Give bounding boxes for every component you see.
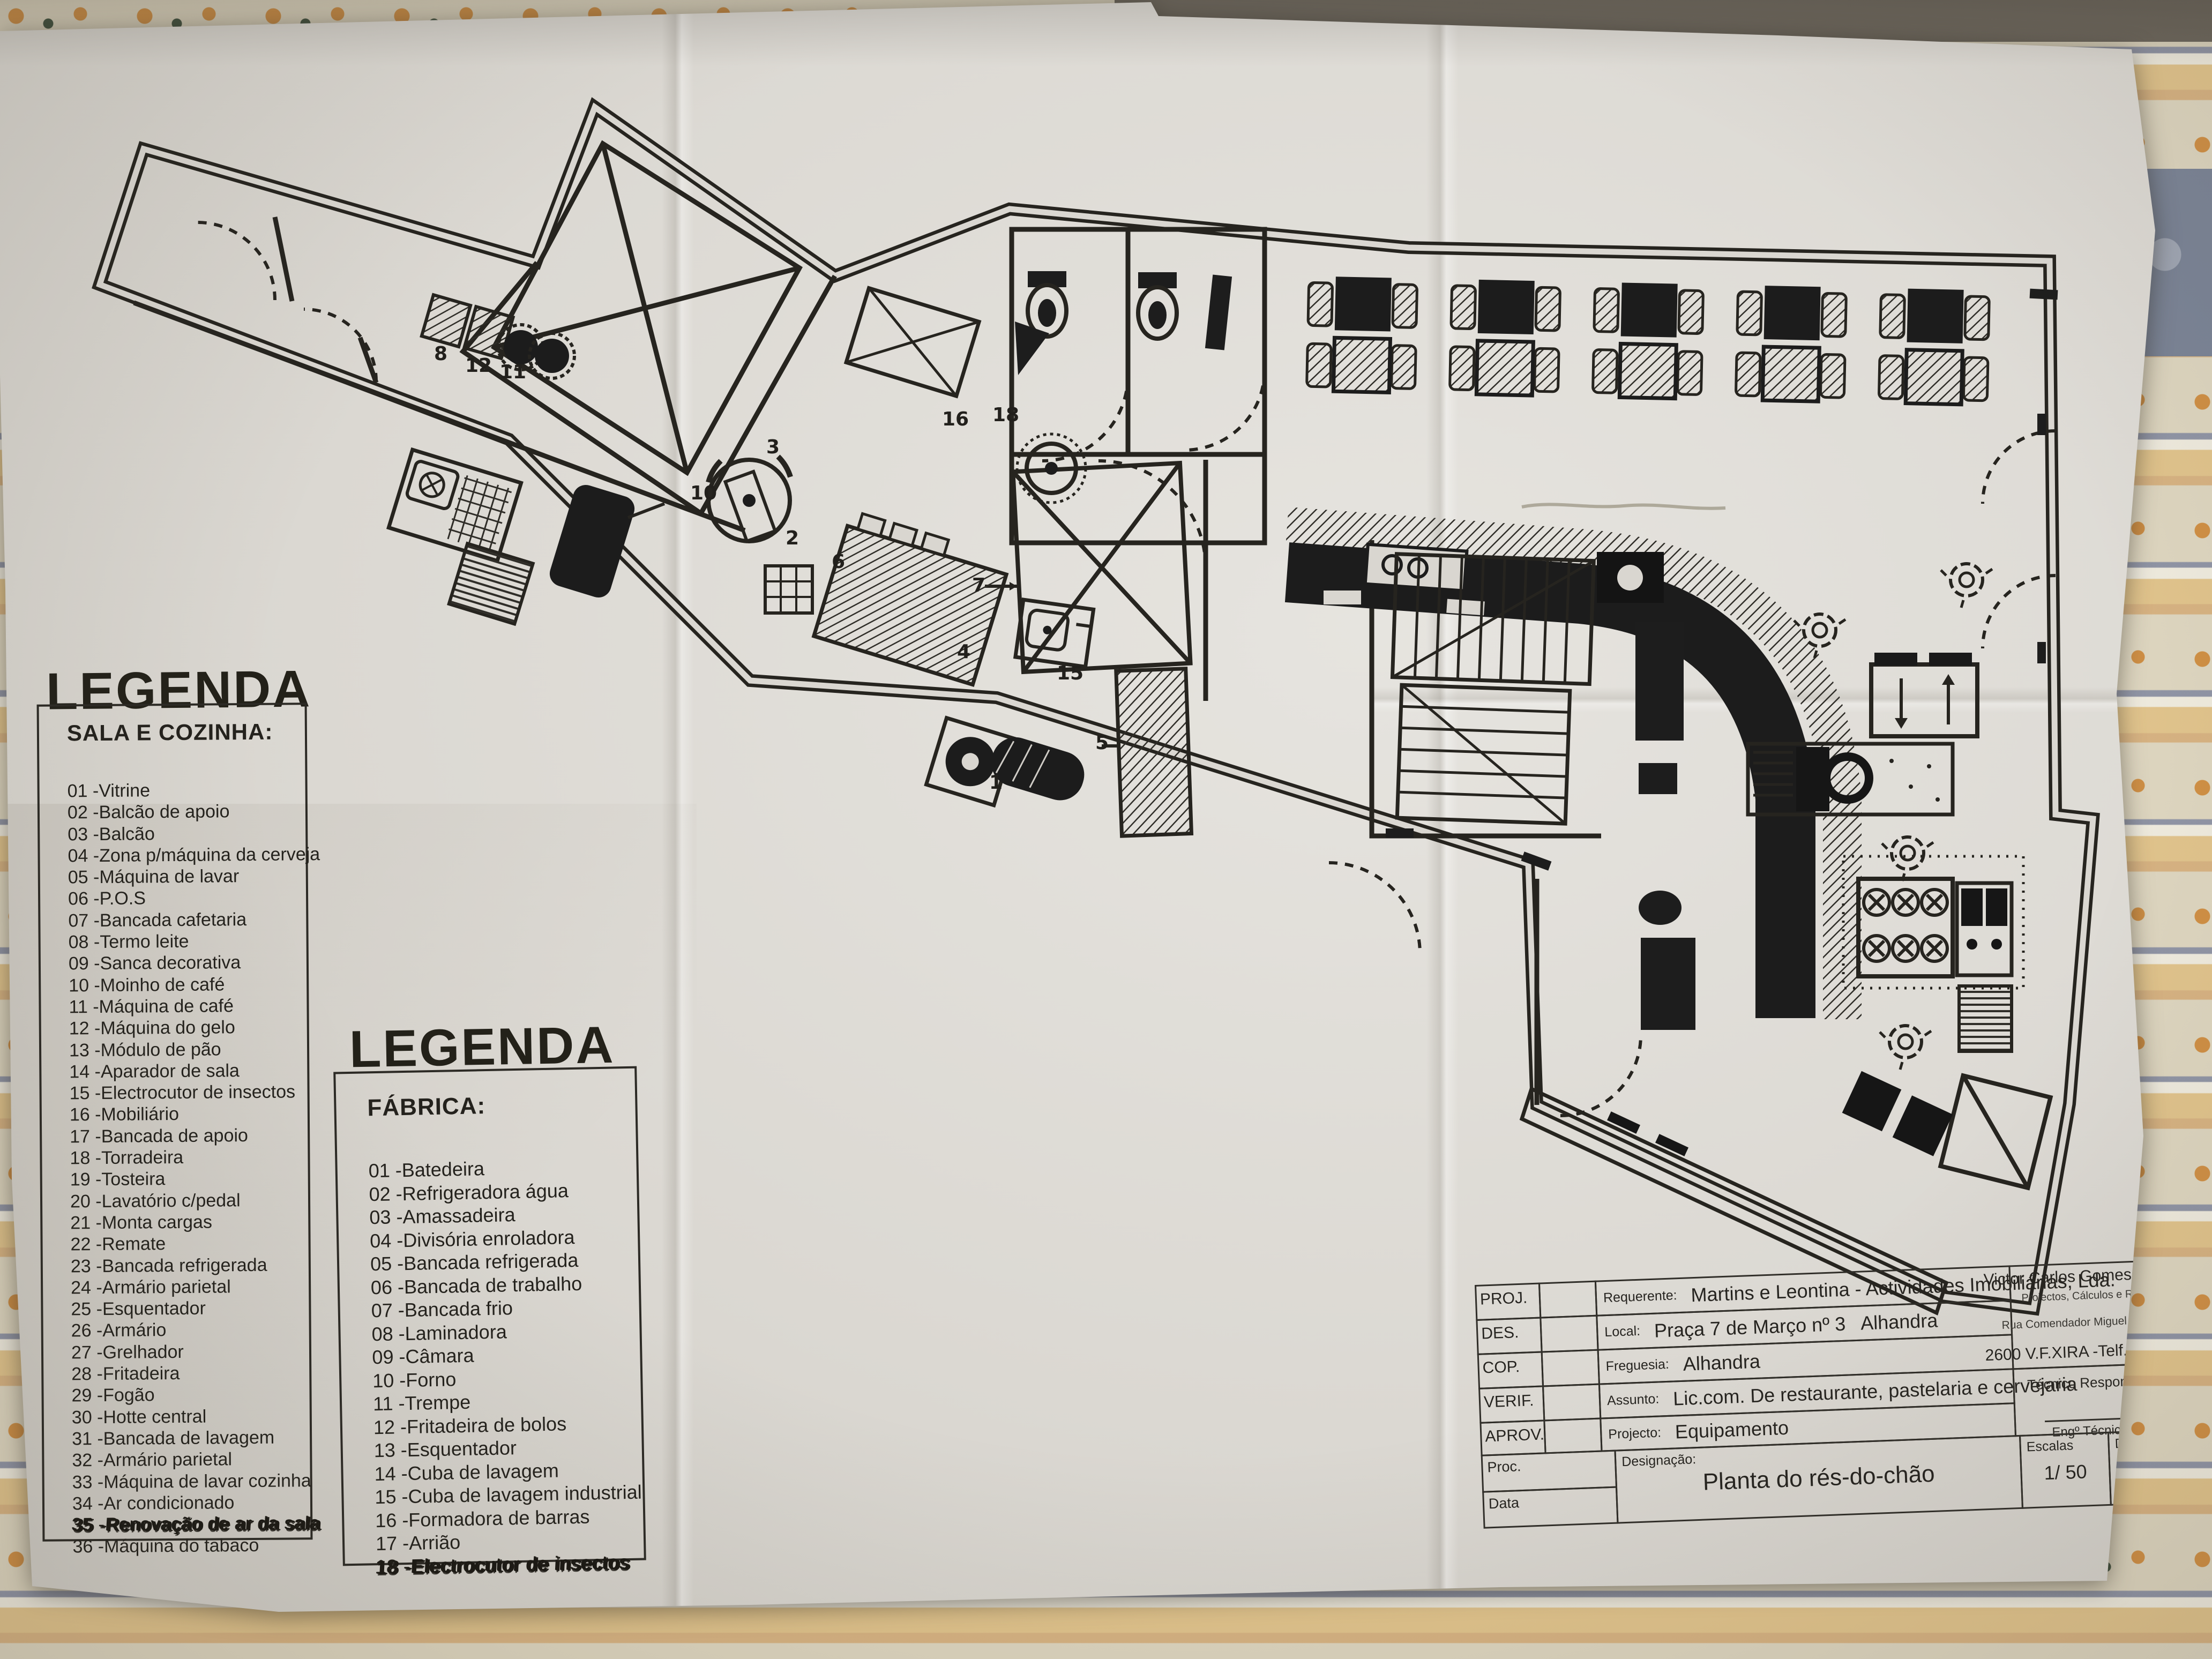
legend-item: 33 -Máquina de lavar cozinha	[72, 1470, 310, 1493]
tb-blank	[1538, 1281, 1597, 1319]
legend-item: 11 -Máquina de café	[69, 995, 307, 1018]
legend-item: 34 -Ar condicionado	[72, 1491, 310, 1514]
tb-aprov: APROV.	[1479, 1419, 1546, 1456]
svg-text:2: 2	[786, 527, 799, 549]
legend-item: 23 -Bancada refrigerada	[71, 1254, 309, 1277]
legend-item: 18 -Torradeira	[70, 1146, 308, 1169]
legend-item: 24 -Armário parietal	[71, 1275, 309, 1298]
tb-blank	[1543, 1418, 1602, 1454]
tb-blank	[1542, 1384, 1601, 1422]
svg-text:7: 7	[972, 574, 985, 596]
wc-fixtures	[1015, 271, 1265, 503]
field-label: Freguesia:	[1605, 1357, 1669, 1374]
svg-text:16: 16	[942, 408, 969, 430]
field-value: Equipamento	[1675, 1417, 1789, 1444]
desnum-label: Des. Nº	[2114, 1434, 2187, 1452]
tb-proj: PROJ.	[1475, 1283, 1541, 1321]
legend-item: 31 -Bancada de lavagem	[72, 1426, 310, 1449]
tb-blank	[1540, 1315, 1598, 1353]
legend-item: 02 -Balcão de apoio	[68, 801, 305, 824]
plan-number-labels: 81211103261618715415	[434, 343, 1109, 794]
paper-wrap: 81211103261618715415 LEGENDA SALA E COZI…	[0, 0, 2212, 1659]
tb-tech: Técnico Responsável nº Engº Técnico Civi…	[2012, 1362, 2193, 1437]
firm-city-phone: 2600 V.F.XIRA -Telf. 063/270522	[1985, 1338, 2212, 1365]
legend-item: 14 -Aparador de sala	[69, 1059, 307, 1082]
legend-item: 30 -Hotte central	[72, 1405, 310, 1428]
field-label: Assunto:	[1607, 1392, 1660, 1409]
skylight-crossed-rect	[1013, 463, 1190, 672]
svg-text:3: 3	[766, 436, 780, 458]
tb-firm: Victor Carlos Gomes Fernandes Projectos,…	[2008, 1259, 2191, 1370]
legend-item: 18 -Electrocutor de insectos	[376, 1550, 645, 1579]
escalas-value: 1/ 50	[2027, 1460, 2104, 1485]
legend-item: 36 -Máquina do tabaco	[72, 1535, 310, 1558]
legend-item: 19 -Tosteira	[70, 1168, 308, 1191]
svg-text:5: 5	[1095, 732, 1109, 754]
legend-item: 20 -Lavatório c/pedal	[70, 1189, 308, 1212]
legend-sala-subtitle: SALA E COZINHA:	[67, 719, 305, 746]
svg-text:1: 1	[989, 772, 1003, 794]
legend-sala-items: 01 -Vitrine02 -Balcão de apoio03 -Balcão…	[68, 779, 311, 1558]
svg-text:4: 4	[957, 641, 970, 663]
signature-line	[2044, 1416, 2162, 1422]
svg-text:11: 11	[499, 361, 526, 383]
tb-designacao: Designação: Planta do rés-do-chão	[1614, 1435, 2023, 1524]
tb-verif: VERIF.	[1478, 1385, 1545, 1423]
tb-blank	[1541, 1349, 1600, 1387]
crossed-rect-bottom-right	[1940, 1075, 2050, 1187]
legend-item: 35 -Renovação de ar da sala	[72, 1513, 311, 1536]
tb-des: DES.	[1476, 1317, 1542, 1355]
dining-tables-row	[1306, 276, 1989, 405]
title-block: PROJ. DES. COP. VERIF. APROV. Requerente…	[1475, 1259, 2196, 1528]
legend-item: 07 -Bancada cafetaria	[68, 908, 306, 931]
legend-item: 26 -Armário	[71, 1319, 309, 1342]
svg-text:12: 12	[465, 355, 492, 377]
legend-item: 06 -P.O.S	[68, 887, 306, 910]
tb-cop: COP.	[1477, 1351, 1544, 1389]
firm-subtitle: Projectos, Cálculos e Resp. Civil	[2021, 1287, 2177, 1305]
photo-of-floorplan: { "photo": { "paper_color": "#d9d6d0", "…	[0, 0, 2212, 1659]
legend-item: 08 -Termo leite	[69, 930, 307, 953]
svg-text:10: 10	[690, 482, 717, 504]
legend-item: 09 -Sanca decorativa	[69, 952, 307, 975]
tb-escalas: Escalas 1/ 50	[2019, 1432, 2112, 1509]
field-label: Local:	[1604, 1324, 1641, 1340]
legend-item: 03 -Balcão	[68, 822, 305, 845]
svg-text:8: 8	[434, 343, 447, 365]
legend-fabrica-items: 01 -Batedeira02 -Refrigeradora água03 -A…	[368, 1154, 644, 1579]
legend-item: 17 -Bancada de apoio	[70, 1124, 308, 1147]
legend-item: 32 -Armário parietal	[72, 1448, 310, 1471]
field-label: Requerente:	[1603, 1288, 1678, 1306]
tb-proc: Proc.	[1481, 1450, 1617, 1493]
legend-item: 28 -Fritadeira	[71, 1362, 309, 1385]
legend-item: 29 -Fogão	[71, 1384, 309, 1407]
tb-data: Data	[1482, 1486, 1618, 1529]
tb-desnum: Des. Nº 1	[2108, 1429, 2196, 1506]
legend-item: 12 -Máquina do gelo	[69, 1017, 307, 1040]
legend-item: 27 -Grelhador	[71, 1340, 309, 1363]
escalas-label: Escalas	[2026, 1437, 2103, 1455]
svg-text:15: 15	[1057, 662, 1083, 684]
field-value: Praça 7 de Março nº 3 Alhandra	[1654, 1309, 1938, 1342]
desnum-value: 1	[2116, 1456, 2188, 1482]
legend-item: 21 -Monta cargas	[70, 1210, 308, 1234]
legend-fabrica-box: FÁBRICA: 01 -Batedeira02 -Refrigeradora …	[333, 1066, 646, 1566]
paper-sheet: 81211103261618715415 LEGENDA SALA E COZI…	[0, 0, 2212, 1659]
pencil-scribble	[1522, 504, 1725, 508]
svg-text:18: 18	[992, 404, 1019, 426]
legend-sala-box: SALA E COZINHA: 01 -Vitrine02 -Balcão de…	[37, 703, 313, 1541]
legend-item: 22 -Remate	[70, 1232, 308, 1255]
legend-item: 13 -Módulo de pão	[69, 1038, 307, 1061]
legend-item: 05 -Máquina de lavar	[68, 865, 306, 888]
tech-label: Técnico Responsável nº	[2027, 1371, 2178, 1393]
legend-item: 01 -Vitrine	[68, 779, 305, 802]
firm-name: Victor Carlos Gomes Fernandes	[1983, 1263, 2212, 1290]
field-value: Alhandra	[1683, 1350, 1761, 1375]
legend-item: 16 -Mobiliário	[70, 1103, 308, 1126]
legend-fabrica-subtitle: FÁBRICA:	[367, 1090, 636, 1122]
legend-item: 10 -Moinho de café	[69, 973, 307, 996]
field-label: Projecto:	[1608, 1425, 1662, 1443]
legend-item: 15 -Electrocutor de insectos	[69, 1081, 307, 1104]
legend-item: 04 -Zona p/máquina da cerveja	[68, 843, 305, 866]
legend-item: 25 -Esquentador	[71, 1297, 309, 1320]
svg-text:6: 6	[832, 551, 845, 573]
firm-address: Rua Comendador Miguel Esgueilha, 14	[2001, 1312, 2198, 1332]
